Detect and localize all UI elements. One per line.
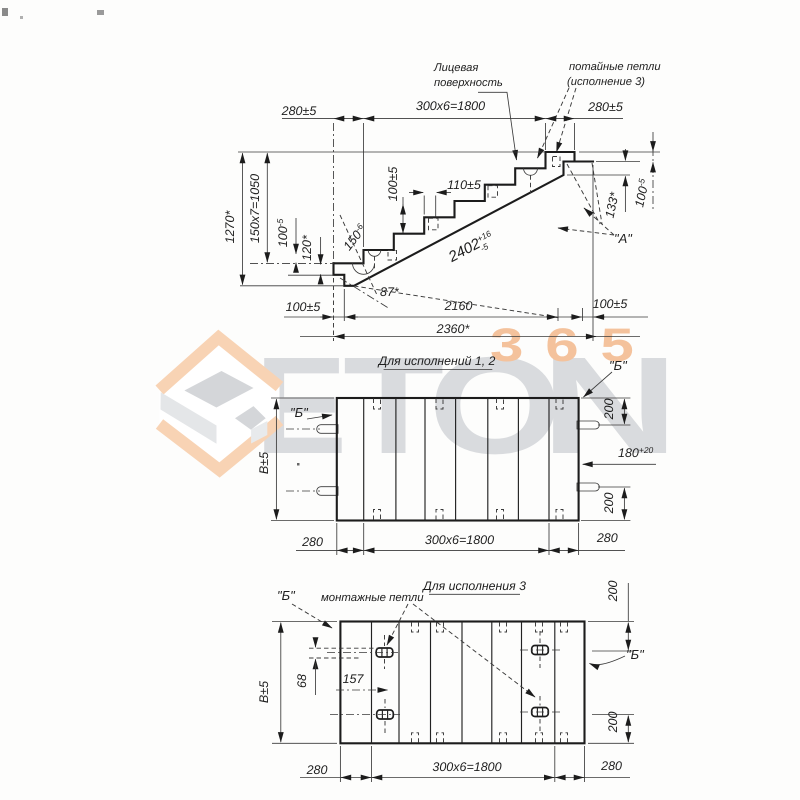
svg-text:2160: 2160 [444, 299, 473, 313]
svg-text:потайные петли: потайные петли [569, 61, 661, 73]
svg-text:280: 280 [301, 535, 323, 549]
svg-text:280±5: 280±5 [587, 100, 623, 114]
svg-text:В±5: В±5 [257, 452, 271, 474]
svg-text:100-5: 100-5 [631, 177, 652, 208]
svg-text:87*: 87* [380, 285, 400, 299]
svg-text:200: 200 [606, 712, 620, 734]
svg-text:(исполнение 3): (исполнение 3) [567, 76, 645, 88]
svg-text:150x7=1050: 150x7=1050 [248, 174, 262, 243]
svg-text:"Б": "Б" [609, 358, 628, 373]
svg-text:"А": "А" [614, 231, 633, 246]
svg-text:300x6=1800: 300x6=1800 [416, 99, 485, 113]
svg-text:2360*: 2360* [436, 322, 471, 336]
svg-text:280±5: 280±5 [281, 104, 317, 118]
svg-text:280: 280 [596, 531, 618, 545]
svg-text:поверхность: поверхность [434, 77, 503, 89]
svg-text:100-5: 100-5 [275, 219, 290, 248]
svg-text:100±5: 100±5 [286, 300, 321, 314]
svg-text:300x6=1800: 300x6=1800 [432, 760, 501, 774]
svg-text:В±5: В±5 [257, 681, 271, 703]
svg-text:120*: 120* [300, 234, 314, 261]
svg-text:300x6=1800: 300x6=1800 [425, 533, 494, 547]
svg-text:68: 68 [295, 674, 309, 688]
svg-text:200: 200 [606, 581, 620, 603]
svg-text:133*: 133* [603, 190, 622, 219]
svg-text:"Б": "Б" [290, 405, 309, 420]
svg-text:1270*: 1270* [223, 210, 237, 244]
svg-text:365: 365 [490, 318, 656, 371]
svg-text:"Б": "Б" [626, 647, 645, 662]
svg-text:"Б": "Б" [277, 588, 296, 603]
svg-text:157: 157 [343, 672, 365, 686]
svg-text:200: 200 [602, 399, 616, 421]
svg-text:150-6: 150-6 [340, 221, 369, 253]
svg-text:100±5: 100±5 [593, 297, 628, 311]
svg-text:монтажные петли: монтажные петли [321, 592, 424, 604]
svg-text:280: 280 [600, 759, 622, 773]
svg-text:100±5: 100±5 [386, 167, 400, 202]
svg-text:110±5: 110±5 [447, 178, 481, 192]
svg-text:280: 280 [306, 763, 328, 777]
svg-text:Лицевая: Лицевая [433, 62, 478, 74]
svg-text:Для исполнения 3: Для исполнения 3 [421, 579, 526, 593]
svg-text:Для исполнений 1, 2: Для исполнений 1, 2 [377, 354, 496, 368]
svg-text:200: 200 [602, 493, 616, 515]
